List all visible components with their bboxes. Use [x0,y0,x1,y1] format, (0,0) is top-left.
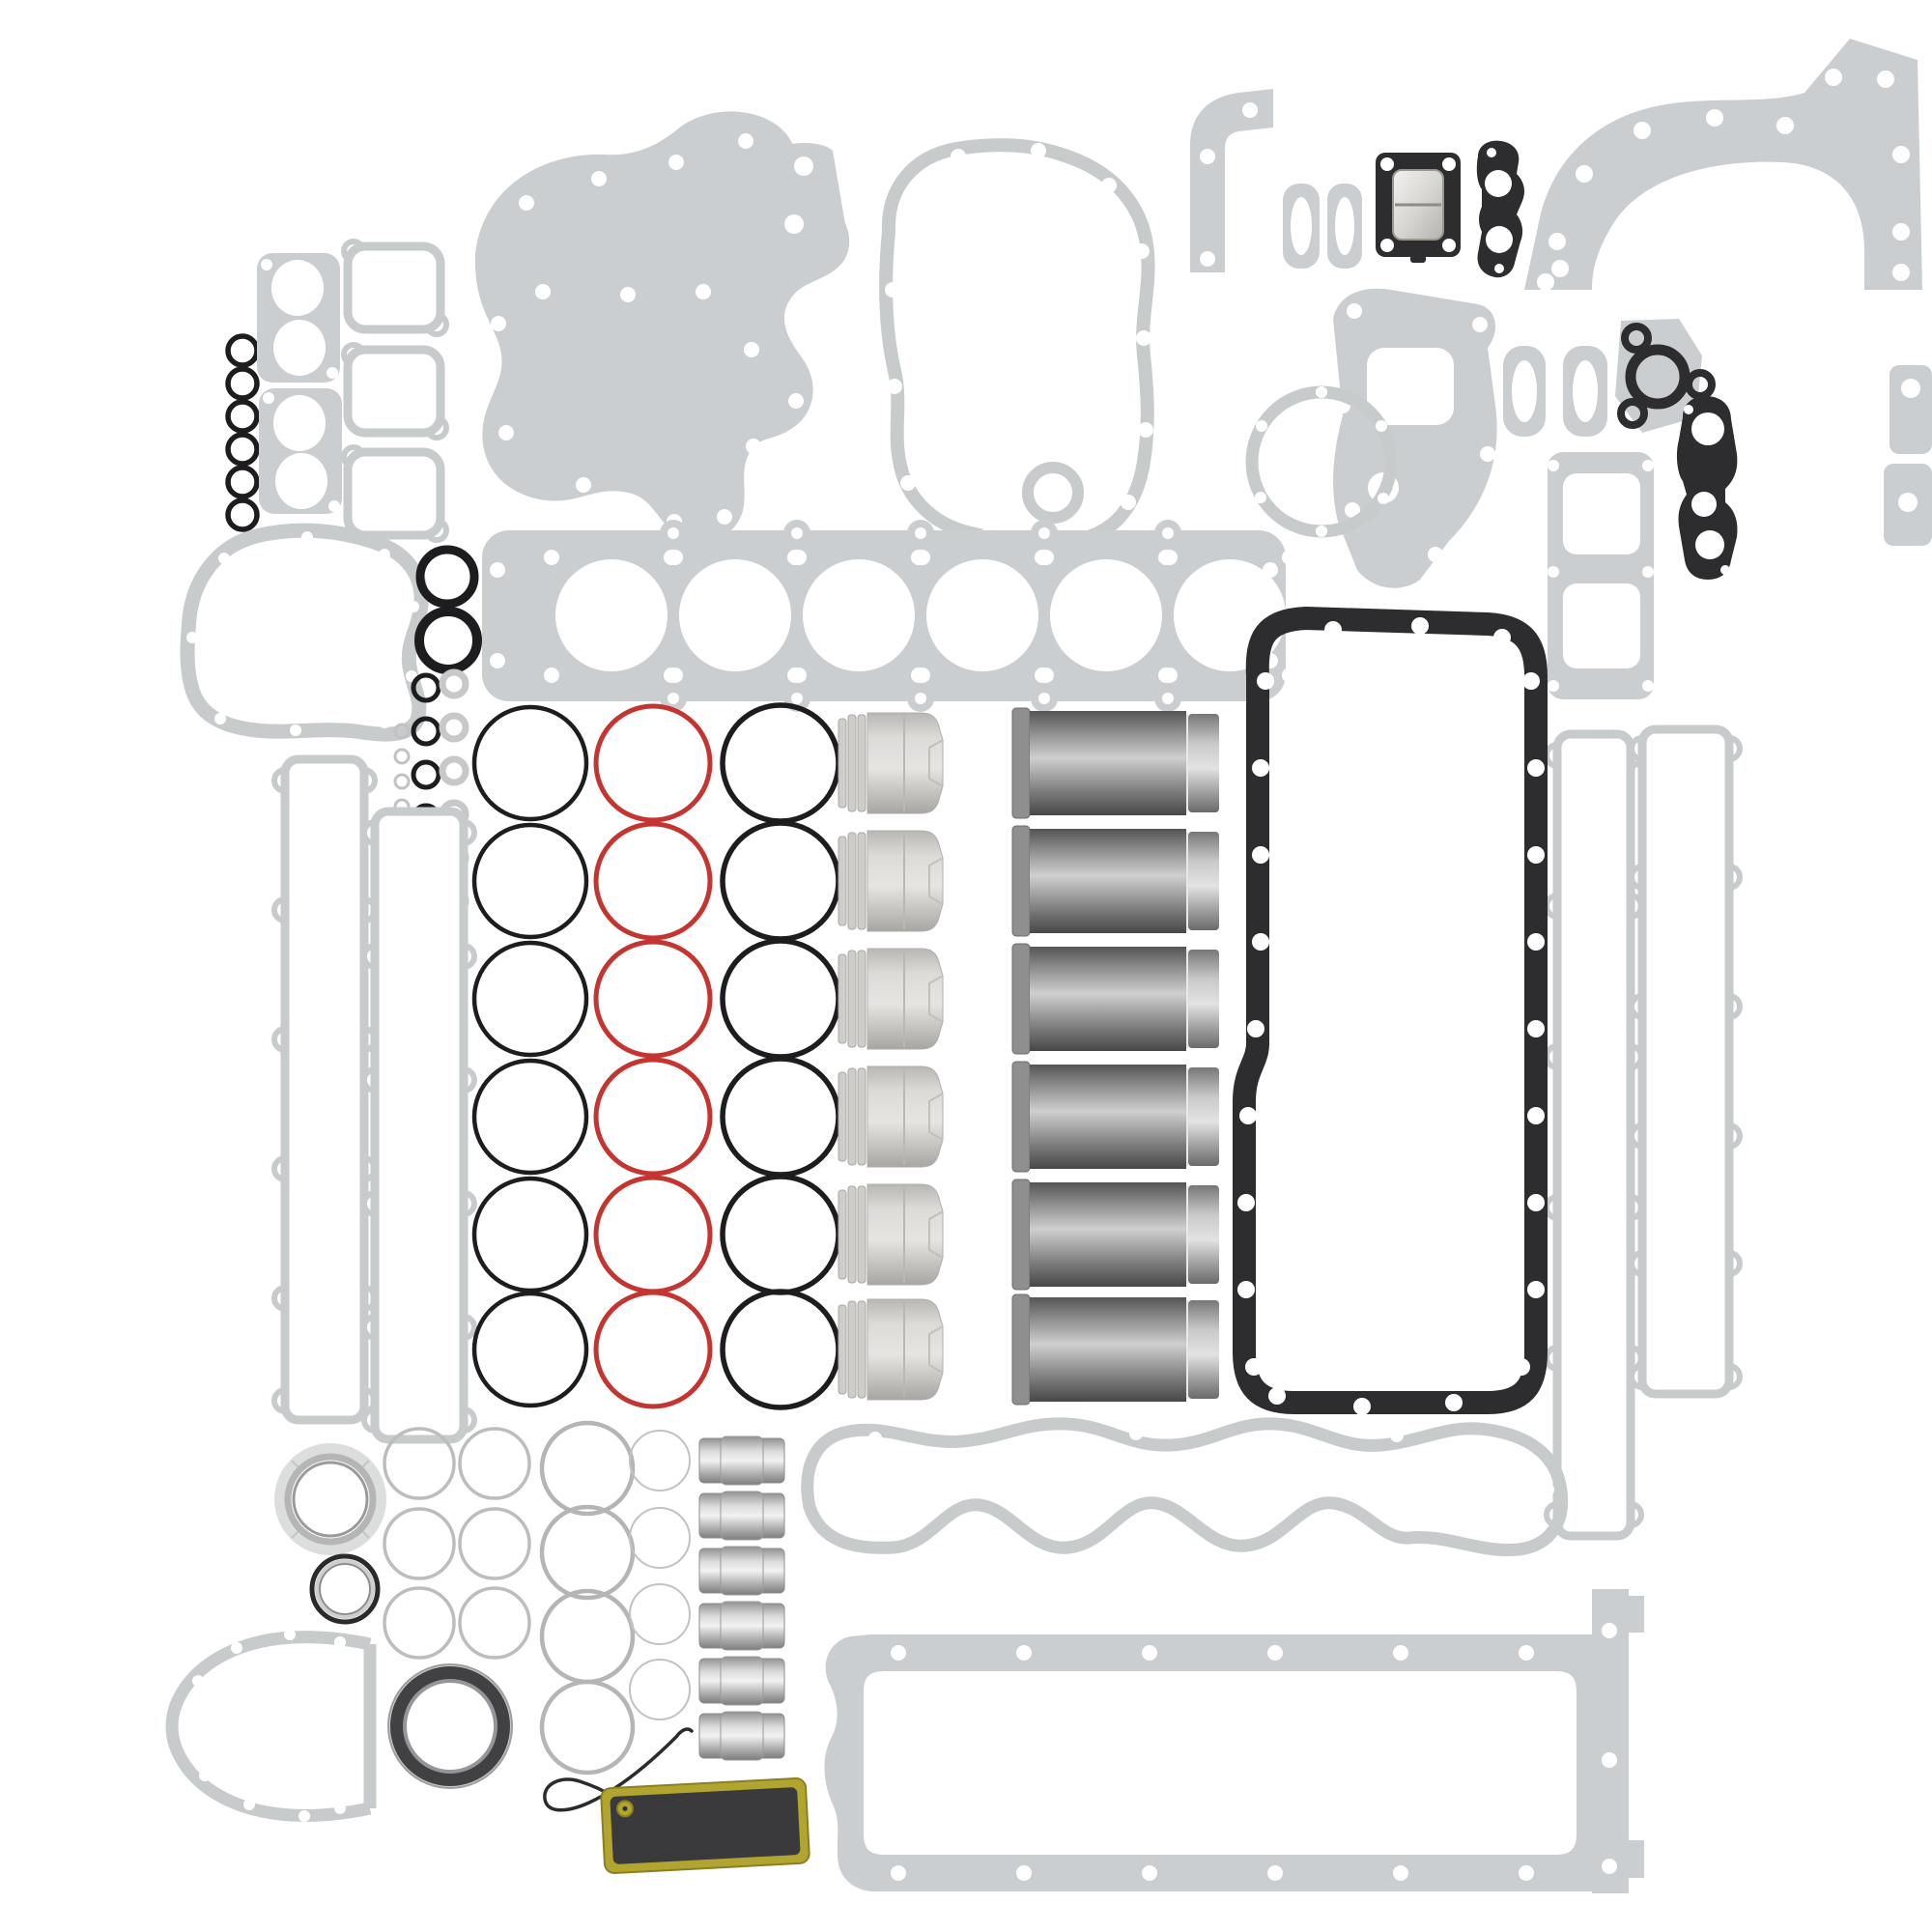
bolt-hole [1031,143,1046,158]
bolt-hole [1393,1645,1408,1661]
bolt-hole [1548,566,1559,578]
bolt-hole [186,632,198,643]
o-ring [228,500,257,529]
liner-oring-black [474,1293,586,1406]
bolt-hole [1527,933,1545,951]
gasket-outline [348,452,440,535]
o-ring [395,750,409,763]
bolt-hole [1527,846,1545,864]
piston-pin [699,1436,784,1485]
liner-oring-black [723,1059,838,1175]
bolt-hole [1551,260,1569,277]
bolt-hole [544,550,559,565]
bolt-hole [746,439,761,454]
timing-cover-ring-gasket [186,530,421,736]
piston-ring [630,1431,690,1491]
bolt-hole [490,562,505,578]
bolt-hole [1602,1752,1617,1768]
gasket-outline [808,1424,1562,1550]
sleeve-face [317,1561,373,1617]
bolt-hole [379,717,390,728]
bolt-hole [1480,446,1495,462]
bolt-hole [1263,562,1278,578]
piston-pin [699,1492,784,1540]
bolt-hole [1255,492,1266,503]
bolt-hole [1519,1865,1534,1881]
bolt-hole [1038,668,1054,683]
port-hole [1563,583,1640,668]
small-cover-gasket [763,143,847,247]
cylinder-liners [1012,708,1219,1405]
bolt-hole [1347,303,1362,319]
seal-lip [288,1457,373,1542]
bolt-hole [1493,629,1511,646]
o-ring [413,762,439,787]
exhaust-port-gasket-1 [257,253,340,383]
liner-oring-red [596,706,710,820]
intake-port-gasket [344,241,446,334]
bolt-hole [1602,1623,1617,1638]
port-hole [1691,492,1717,517]
intake-port-gaskets [344,241,446,540]
bolt-hole [408,601,419,612]
bolt-hole [828,1492,841,1506]
bolt-hole [1576,165,1593,183]
port-hole [1695,530,1724,559]
cylinder-bore [1050,559,1162,671]
bolt-hole [1242,102,1258,118]
exhaust-port-gasket-2 [259,388,342,514]
bolt-hole [1472,317,1488,332]
bolt-hole [1016,1645,1032,1661]
bolt-hole [784,214,804,234]
cylinder-liner [1012,708,1219,818]
bolt-hole [1353,1398,1371,1415]
port-hole [273,320,326,376]
bolt-hole [327,367,338,379]
bolt-hole [1252,759,1269,777]
bolt-hole [898,203,914,218]
bolt-hole [1892,264,1910,281]
liner-oring-black [474,1061,586,1173]
bolt-hole [794,156,813,176]
crank-orings [419,550,477,669]
bolt-hole [328,500,340,512]
bolt-hole [1247,1020,1264,1037]
bolt-hole [668,155,684,170]
bolt-hole [1513,1358,1530,1376]
port-hole [1485,170,1512,197]
gasket-outline [1557,734,1631,1536]
piston-ring [542,1591,633,1682]
piston [838,1066,943,1167]
cylinder-head-gasket [482,520,1297,712]
bolt-hole [1390,1429,1404,1442]
gasket-outline [886,145,1148,544]
piston-ring [542,1682,633,1773]
bolt-hole [1016,1865,1032,1881]
port-hole [275,453,327,509]
bolt-hole [1038,550,1054,565]
service-tag-group [601,1778,810,1874]
bolt-hole [298,1810,310,1822]
port-hole [1486,226,1513,253]
port-hole [1691,412,1724,445]
liner-oring-red [596,1178,710,1292]
angle-bracket-gasket [1190,89,1273,272]
port-hole [1512,360,1537,422]
liner-oring-black [723,1292,838,1407]
bolt-hole [490,653,505,668]
bolt-hole [1527,759,1545,777]
intake-port-gasket [344,447,446,540]
bolt-hole [1378,493,1389,504]
bolt-hole [231,1642,242,1654]
bolt-hole [1316,386,1327,398]
bolt-hole [1316,526,1327,537]
liner-oring-black [723,823,838,939]
rear-housing-wing-gasket [1524,39,1922,291]
cylinder-liner [1012,826,1219,936]
bolt-hole [1892,223,1910,241]
bolt-ear [1689,373,1712,396]
seal-bore-ring [1028,468,1078,518]
bolt-hole [214,713,226,724]
liner-oring-red [596,942,710,1056]
gasket-outline [375,811,464,1439]
port-hole [273,395,326,451]
piston [838,713,943,813]
bolt-hole [1527,1107,1545,1124]
bolt-hole [668,550,683,565]
front-cover-gasket [885,143,1153,545]
liner-oring-black [474,825,586,937]
sleeve-inner [320,1564,370,1614]
bolt-hole [1121,495,1136,510]
piston-pin [699,1712,784,1760]
cover-gasket [1632,729,1740,1394]
bolt-hole [334,1636,346,1648]
bolt-hole [192,1675,204,1687]
cylinder-liner [1012,944,1219,1054]
bolt-hole [1877,71,1894,88]
bolt-hole [786,301,802,317]
gasket-outline [172,1637,370,1816]
bolt-hole [1134,243,1150,259]
bolt-hole [1101,178,1117,193]
bolt-hole [1720,565,1730,575]
bolt-hole [334,1803,346,1814]
bolt-hole [1634,122,1651,139]
bolt-hole [620,287,636,302]
cylinder-bore [555,559,668,671]
bolt-hole [1527,1281,1545,1298]
bolt-hole [1256,420,1267,432]
bolt-hole [1237,1281,1255,1298]
service-tag [601,1778,810,1874]
edge-partial-gaskets [1884,365,1932,546]
piston-pin [699,1547,784,1595]
o-ring [228,336,257,365]
bolt-hole [1527,1020,1545,1037]
bolt-hole [1548,233,1566,250]
cooler-cover-gasket [1548,452,1654,699]
gasket-tab [1410,255,1426,263]
gasket-outline [1244,618,1536,1403]
piston-ring [542,1507,633,1598]
bolt-hole [1252,933,1269,951]
bolt-hole [491,316,506,331]
bolt-hole [1548,680,1559,692]
cylinder-liner [1012,1294,1219,1405]
bolt-hole [1142,1645,1157,1661]
piston [838,831,943,931]
piston-ring [630,1584,690,1644]
piston-ring [542,1423,633,1514]
bolt-hole [1892,146,1910,163]
bolt-hole [1237,1194,1255,1211]
cover-gasket [274,759,375,1420]
piston-ring [384,1509,454,1578]
o-ring [442,716,466,739]
bolt-hole [1642,566,1654,578]
cylinder-bore [926,559,1038,671]
o-ring [395,775,409,788]
gasket-outline [348,350,440,433]
bolt-hole [788,393,804,409]
bolt-hole [182,1721,193,1733]
liner-oring-red [596,824,710,938]
gasket-silhouette [1190,89,1273,272]
gasket-silhouette [1333,289,1497,588]
o-ring [228,369,257,398]
bolt-hole [1129,1427,1143,1440]
cover-gasket [364,811,474,1439]
bolt-hole [1411,617,1429,635]
bolt-hole [696,284,711,299]
sleeve-outer [312,1556,378,1622]
intake-port-gasket [344,345,446,438]
bolt-hole [243,1799,255,1810]
piston-ring [384,1588,454,1658]
gasket-body [1477,141,1524,278]
bolt-hole [1522,672,1540,690]
bolt-hole [1642,680,1654,692]
water-pump-gasket [1333,289,1497,588]
bolt-hole [218,553,230,564]
bolt-hole [1901,379,1920,398]
bolt-hole [301,531,313,543]
bolt-hole [1162,668,1178,683]
bolt-hole [915,668,930,683]
bolt-hole [1142,1865,1157,1881]
o-ring [228,435,257,464]
bolt-hole [717,509,732,525]
bolt-hole [1442,157,1456,171]
bolt-hole [1494,264,1504,273]
bolt-hole [1776,117,1794,134]
bolt-hole [544,668,559,683]
piston-ring [460,1509,529,1578]
valve-cover-gasket [808,1424,1562,1550]
bolt-hole [535,284,551,299]
bolt-hole [1200,149,1215,164]
liner-oring-black [474,1179,586,1291]
bolt-hole [1282,550,1297,565]
bolt-hole [1282,668,1297,683]
piston [838,949,943,1049]
bolt-hole [261,259,272,270]
pistons [838,713,943,1400]
bolt-hole [915,550,930,565]
bolt-hole [1380,239,1394,252]
flywheel-housing-gasket [172,1629,370,1822]
bolt-hole [1602,1859,1617,1874]
bolt-hole [1136,330,1151,346]
bolt-hole [1239,1107,1257,1124]
liner-oring-red [596,1060,710,1174]
bolt-hole [1527,1194,1545,1211]
oval-port-gaskets [1283,184,1362,269]
seal-bore [405,1681,496,1772]
o-ring [442,759,466,782]
bolt-hole [1267,1865,1283,1881]
bolt-hole [1706,109,1723,127]
bolt-hole [1519,1645,1534,1661]
liner-seal-grid [474,705,838,1407]
cylinder-bore [679,559,791,671]
bolt-hole [263,392,274,404]
o-ring [228,402,257,431]
bolt-hole [1324,621,1342,639]
bolt-hole [498,425,514,440]
bolt-hole [885,282,900,298]
gasket-outline [1642,729,1729,1394]
engine-overhaul-kit-image [0,0,1932,1932]
port-hole [1573,360,1598,422]
small-oring-column [228,336,257,529]
bolt-hole [1442,239,1456,252]
bolt-hole [199,1770,211,1781]
bolt-hole [1428,547,1443,562]
cylinder-bore [803,559,915,671]
bolt-hole [738,133,753,149]
bolt-hole [576,477,591,493]
liner-oring-black [474,943,586,1055]
bolt-hole [744,342,759,357]
piston-ring [630,1660,690,1719]
bolt-hole [1393,1865,1408,1881]
bolt-hole [1268,1387,1286,1405]
bolt-hole [1257,672,1274,690]
bolt-hole [1684,405,1693,414]
bolt-hole [1376,420,1387,432]
pan-rail-gasket [824,1589,1644,1893]
liner-oring-black [723,1177,838,1293]
tag-face [610,1787,800,1864]
piston [838,1184,943,1285]
bolt-hole [1548,460,1559,471]
piston [838,1299,943,1400]
liner-oring-black [723,941,838,1057]
bolt-hole [591,171,607,186]
bolt-hole [1898,493,1918,512]
bolt-hole [668,668,683,683]
gasket-outline [285,759,364,1420]
rear-crank-seal [388,1664,512,1788]
o-ring [420,550,474,604]
oval-port-gaskets-2 [1503,346,1607,437]
bolt-hole [951,149,966,164]
piston-ring [460,1429,529,1498]
bolt-hole [1825,69,1842,86]
bolt-hole [1252,846,1269,864]
liner-oring-black [474,707,586,819]
push-rod-cover-gaskets-left [274,759,474,1439]
bolt-hole [1487,148,1496,157]
bolt-hole [791,550,807,565]
bolt-hole [1380,157,1394,171]
liner-oring-red [596,1293,710,1406]
o-ring [228,468,257,497]
bolt-hole [887,379,902,394]
piston-pin [699,1602,784,1650]
oil-pan-gasket [1237,617,1545,1415]
gasket-band [824,1589,1644,1893]
bolt-hole [1642,460,1654,471]
bolt-hole [1245,1358,1263,1376]
bolt-hole [900,475,916,491]
bolt-hole [1267,1645,1283,1661]
port-hole [271,260,324,316]
bolt-hole [290,724,301,736]
piston-ring [460,1588,529,1658]
turbo-drain-gasket [1477,141,1524,278]
turbo-mount-gasket [1376,153,1461,263]
bolt-hole [1162,550,1178,565]
rocker-cover-gaskets-right [1547,729,1740,1536]
o-ring [419,611,477,669]
bolt-hole [379,549,390,560]
piston-pins [699,1436,784,1760]
bolt-hole [1541,1483,1554,1496]
bolt-hole [1537,273,1554,291]
cylinder-liner [1012,1179,1219,1290]
bolt-hole [519,195,534,211]
oil-cooler-gasket [1677,396,1738,580]
o-ring [442,672,466,696]
bolt-hole [1200,251,1215,267]
piston-pin [699,1657,784,1705]
bolt-hole [284,1629,296,1640]
port-hole [1335,197,1354,255]
bolt-hole [891,1645,906,1661]
bolt-hole [791,668,807,683]
front-crank-seal [274,1443,386,1555]
bolt-hole [868,1432,882,1445]
bolt-hole [1445,1394,1463,1411]
wear-sleeve [312,1556,378,1622]
bolt-hole [891,1865,906,1881]
cylinder-liner [1012,1062,1219,1172]
port-hole [1563,473,1640,554]
piston-ring [630,1508,690,1568]
cover-gasket [1547,734,1641,1536]
gasket-outline [348,246,440,329]
port-hole [1291,197,1312,255]
liner-oring-black [723,705,838,821]
gasket-silhouette [1524,39,1922,290]
